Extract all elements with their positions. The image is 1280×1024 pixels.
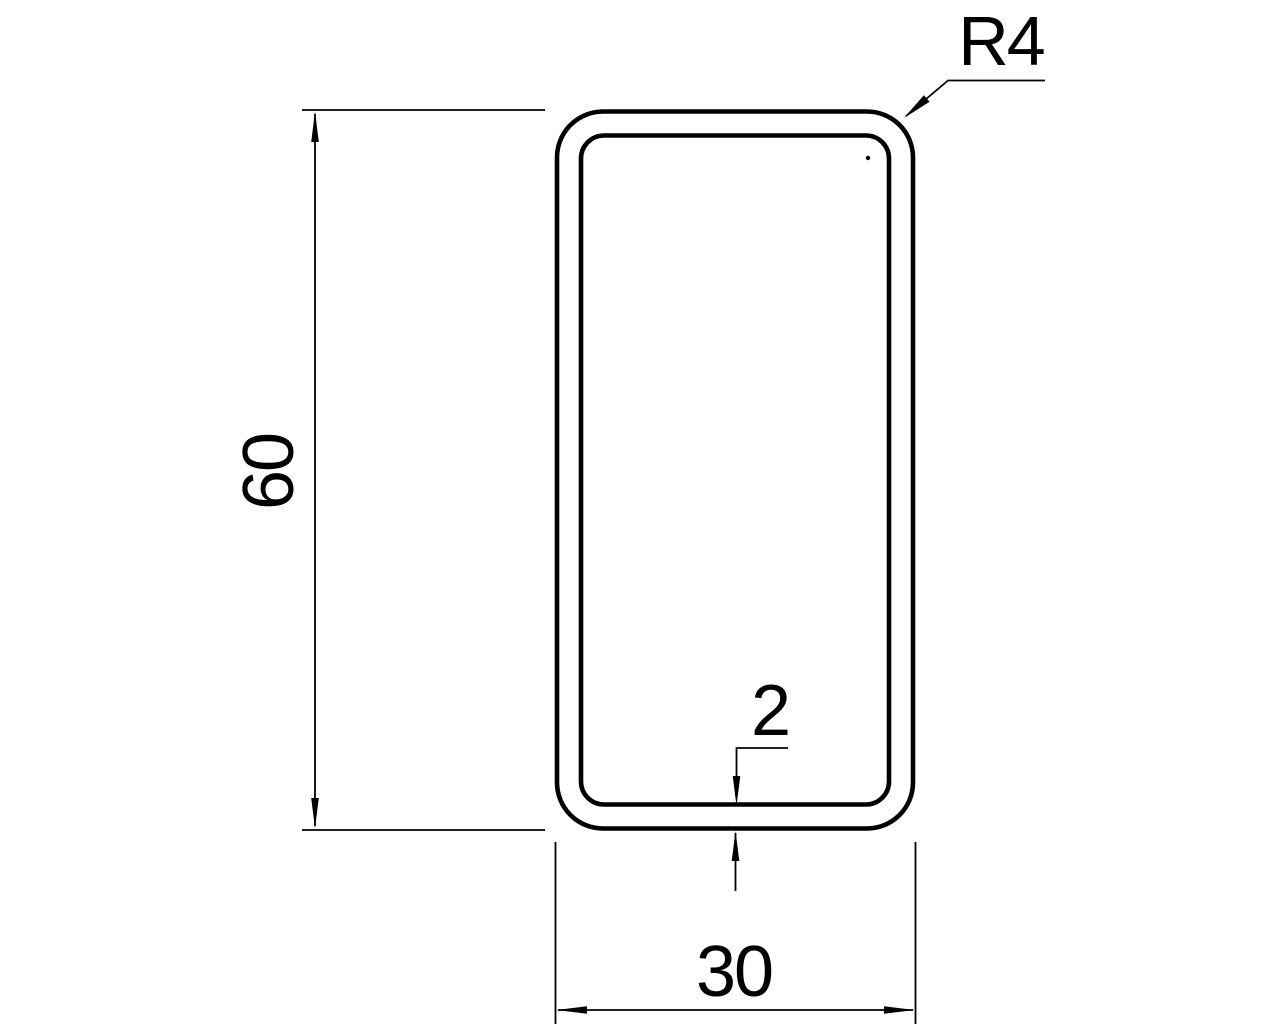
- outer-profile: [557, 112, 913, 829]
- radius-dimension-label: R4: [958, 2, 1044, 80]
- cad-drawing-canvas: 60 30 2 R4: [0, 0, 1280, 1024]
- radius-leader-line: [906, 81, 1045, 117]
- tube-profile-group: [557, 112, 913, 829]
- center-mark-dot: [866, 156, 870, 160]
- radius-arrow-icon: [904, 95, 930, 118]
- height-dimension-label: 60: [229, 434, 309, 510]
- height-arrow-up-icon: [311, 112, 319, 143]
- thickness-arrow-down-icon: [733, 776, 741, 806]
- thickness-dimension-label: 2: [751, 671, 789, 751]
- thickness-arrow-up-icon: [732, 831, 740, 861]
- width-dimension-label: 30: [696, 932, 772, 1012]
- height-arrow-down-icon: [311, 798, 319, 829]
- tube-cross-section-drawing: 60 30 2 R4: [0, 0, 1280, 1024]
- dimension-lines-group: [302, 81, 1045, 1024]
- thickness-leader-line: [737, 748, 789, 784]
- inner-profile: [581, 136, 889, 805]
- width-arrow-left-icon: [557, 1006, 588, 1014]
- arrowheads-group: [311, 95, 929, 1014]
- width-arrow-right-icon: [884, 1006, 915, 1014]
